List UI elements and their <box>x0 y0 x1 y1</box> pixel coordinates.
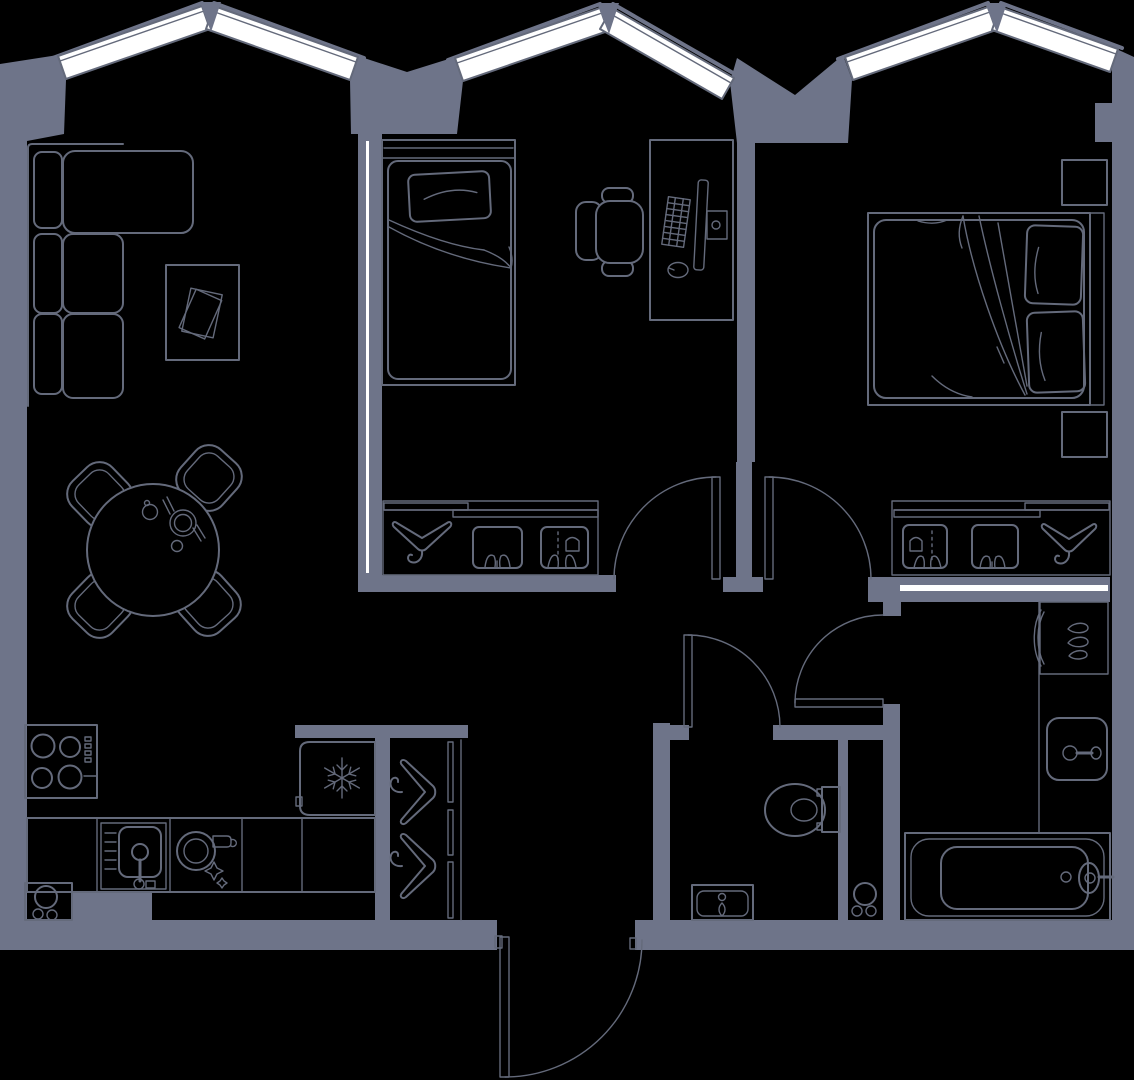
toilet-bowl-inner <box>791 799 817 821</box>
sofa-chaise <box>63 151 193 233</box>
monitor <box>694 180 709 270</box>
wall-bottom-left <box>0 920 497 950</box>
bathtub <box>905 833 1113 920</box>
storage-box <box>903 525 947 568</box>
mattress <box>874 220 1084 398</box>
bathtub-faucet-head <box>1085 873 1095 883</box>
round-dining-table <box>87 484 219 616</box>
bedroom-2-door <box>765 477 871 579</box>
drop-icon <box>1068 637 1088 646</box>
sink-drain <box>132 844 148 860</box>
drainboard-ribs <box>105 833 116 869</box>
hall-wardrobe <box>391 740 461 920</box>
bedroom-1-door <box>614 477 720 579</box>
door-swing-arc <box>688 635 780 727</box>
nightstand <box>1062 412 1107 457</box>
bathtub-drain <box>1061 872 1071 882</box>
door-swing-arc <box>614 477 716 579</box>
bay-windows <box>50 2 1122 99</box>
pipe-shaft <box>852 883 876 916</box>
kitchen-sink <box>101 823 166 889</box>
sliding-door <box>1025 503 1109 510</box>
door-leaf <box>712 477 720 579</box>
single-bed <box>382 140 515 385</box>
wall-bedroom1-bedroom2 <box>737 77 755 462</box>
sofa-seat <box>63 314 123 398</box>
hanger-icon <box>391 760 436 824</box>
door-leaf <box>765 477 773 579</box>
pot-small <box>33 909 43 919</box>
office-chair <box>576 188 643 276</box>
living-room <box>28 144 249 645</box>
bed-frame <box>382 140 515 385</box>
pillow-crease <box>1034 247 1039 293</box>
washbasin-drain <box>1063 746 1077 760</box>
burner <box>59 766 82 789</box>
plate-large <box>177 832 215 870</box>
hanger-icon <box>393 522 451 563</box>
wall-wc-top-right <box>773 725 888 740</box>
desk-top <box>650 140 733 320</box>
storage-box <box>972 525 1018 568</box>
base-cabinet <box>25 883 72 920</box>
wc-sink-drain <box>719 903 725 916</box>
wardrobe-rail <box>448 810 453 855</box>
counter-run <box>27 818 375 892</box>
wc-sink <box>692 885 753 920</box>
washbasin-bowl <box>1047 718 1107 780</box>
double-bed <box>868 213 1104 405</box>
wc-door <box>684 635 780 727</box>
cooktop-knobs <box>84 737 96 776</box>
bathtub-rim <box>911 839 1104 916</box>
wall-right <box>1095 46 1134 950</box>
drop-icon <box>1069 651 1087 659</box>
sliding-door <box>894 510 1040 517</box>
wc <box>692 784 840 920</box>
dish-rack <box>177 832 236 888</box>
door-swing-arc <box>769 477 871 579</box>
coffee-table-top <box>166 265 239 360</box>
monitor-stand <box>712 221 720 229</box>
burner <box>60 737 80 757</box>
blanket-fold <box>932 216 1027 397</box>
snowflake-icon <box>322 758 362 798</box>
hanger-icon <box>1042 524 1096 564</box>
drop-icon <box>1068 623 1088 632</box>
monitor-bracket <box>707 211 727 239</box>
mouse-cable <box>669 268 674 270</box>
sofa-cushion <box>34 234 62 313</box>
pillow <box>1025 225 1084 305</box>
kitchen <box>25 725 375 920</box>
bathtub-basin <box>941 847 1088 909</box>
chair-seat <box>596 201 643 263</box>
cooktop <box>25 725 97 798</box>
bed-frame <box>868 213 1090 405</box>
door-leaf <box>500 937 509 1077</box>
towel-dryer <box>1034 602 1108 674</box>
window-panel <box>600 8 734 99</box>
sliding-door <box>384 503 468 510</box>
wall-closet1-bottom <box>358 575 616 592</box>
wall-wc-left <box>653 723 670 922</box>
glass <box>213 836 236 847</box>
floor-plan-svg <box>0 0 1134 1080</box>
burner <box>32 735 55 758</box>
bathroom-door <box>795 615 883 707</box>
storage-box <box>541 527 588 568</box>
faucet-handle <box>146 881 155 888</box>
entry-door <box>495 936 642 1077</box>
pillow-crease <box>424 189 477 199</box>
pipe-riser-large <box>854 883 876 905</box>
wall-living-bedroom1 <box>358 132 382 592</box>
wall-living-bedroom1-stripe <box>366 141 369 573</box>
pillow <box>1027 311 1086 393</box>
refrigerator <box>296 742 375 815</box>
kitchen-counter <box>27 818 375 892</box>
mouse <box>668 263 688 278</box>
pillow-crease <box>1039 332 1045 380</box>
fridge-body <box>300 742 375 815</box>
sofa-armrest-cushion <box>34 152 62 228</box>
bay-window-1 <box>58 2 358 80</box>
mattress <box>388 161 511 379</box>
door-swing-arc <box>795 615 883 703</box>
wall-door-pillar <box>736 462 752 578</box>
bedroom-2 <box>868 160 1110 575</box>
toilet <box>765 784 840 836</box>
wall-kitchen-band <box>295 725 468 738</box>
hanger-icon <box>391 834 436 898</box>
wall-door-pillar-base <box>723 577 763 592</box>
wardrobe-rail <box>448 742 453 802</box>
plate-large-inner <box>184 839 208 863</box>
headboard <box>382 140 515 158</box>
counter-dividers <box>97 818 302 892</box>
dining-set <box>60 438 249 646</box>
pot-large <box>35 886 57 908</box>
sofa-seat <box>63 234 123 313</box>
closet-bedroom-2 <box>892 501 1110 575</box>
wall-left <box>0 132 27 950</box>
wall-bottom-block <box>72 892 152 920</box>
wall-left-wedge <box>0 55 66 141</box>
wall-kitchen-vert <box>375 738 390 922</box>
wall-bedroom2-bath-stripe <box>900 585 1108 591</box>
wall-bottom-right <box>635 920 1134 950</box>
pot-small <box>47 910 57 920</box>
sliding-door <box>453 510 598 517</box>
headboard <box>1090 213 1104 405</box>
wall-bath-door-stub <box>883 598 901 616</box>
blanket-fold <box>389 220 512 268</box>
burner <box>32 768 52 788</box>
door-swing-arc <box>505 940 642 1077</box>
door-leaf <box>795 699 883 707</box>
bedroom-1 <box>382 140 733 575</box>
pipe-riser-small <box>852 906 862 916</box>
washbasin <box>1047 718 1107 780</box>
desk <box>650 140 733 320</box>
pipe-riser-small <box>866 906 876 916</box>
cabinet-body <box>25 883 72 920</box>
bathroom <box>905 602 1113 920</box>
wall-valley-1 <box>350 56 463 134</box>
nightstand <box>1062 160 1107 205</box>
sofa-cushion <box>34 314 62 394</box>
wc-sink-faucet <box>719 894 726 901</box>
wardrobe-rail <box>448 862 453 918</box>
closet-bedroom-1 <box>383 501 598 575</box>
storage-box <box>473 527 522 568</box>
corner-sofa <box>28 144 193 406</box>
floor-plan-canvas <box>0 0 1134 1080</box>
toilet-bowl <box>765 784 825 836</box>
pillow <box>408 171 491 222</box>
sofa-back <box>28 144 123 406</box>
door-leaf <box>684 635 692 727</box>
keyboard-grid <box>662 197 690 248</box>
coffee-table <box>166 265 239 360</box>
glazing-line <box>609 13 731 83</box>
